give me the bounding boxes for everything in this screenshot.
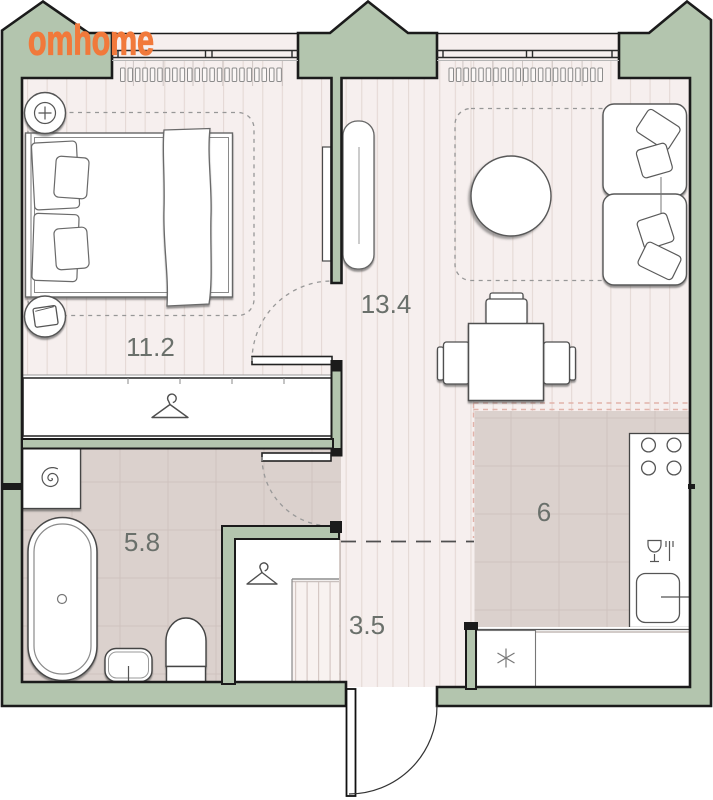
svg-text:omhome: omhome <box>28 17 154 64</box>
svg-text:3.5: 3.5 <box>349 610 385 640</box>
svg-text:5.8: 5.8 <box>124 527 160 557</box>
svg-text:13.4: 13.4 <box>361 289 412 319</box>
svg-text:11.2: 11.2 <box>126 332 175 362</box>
svg-text:6: 6 <box>537 497 551 527</box>
